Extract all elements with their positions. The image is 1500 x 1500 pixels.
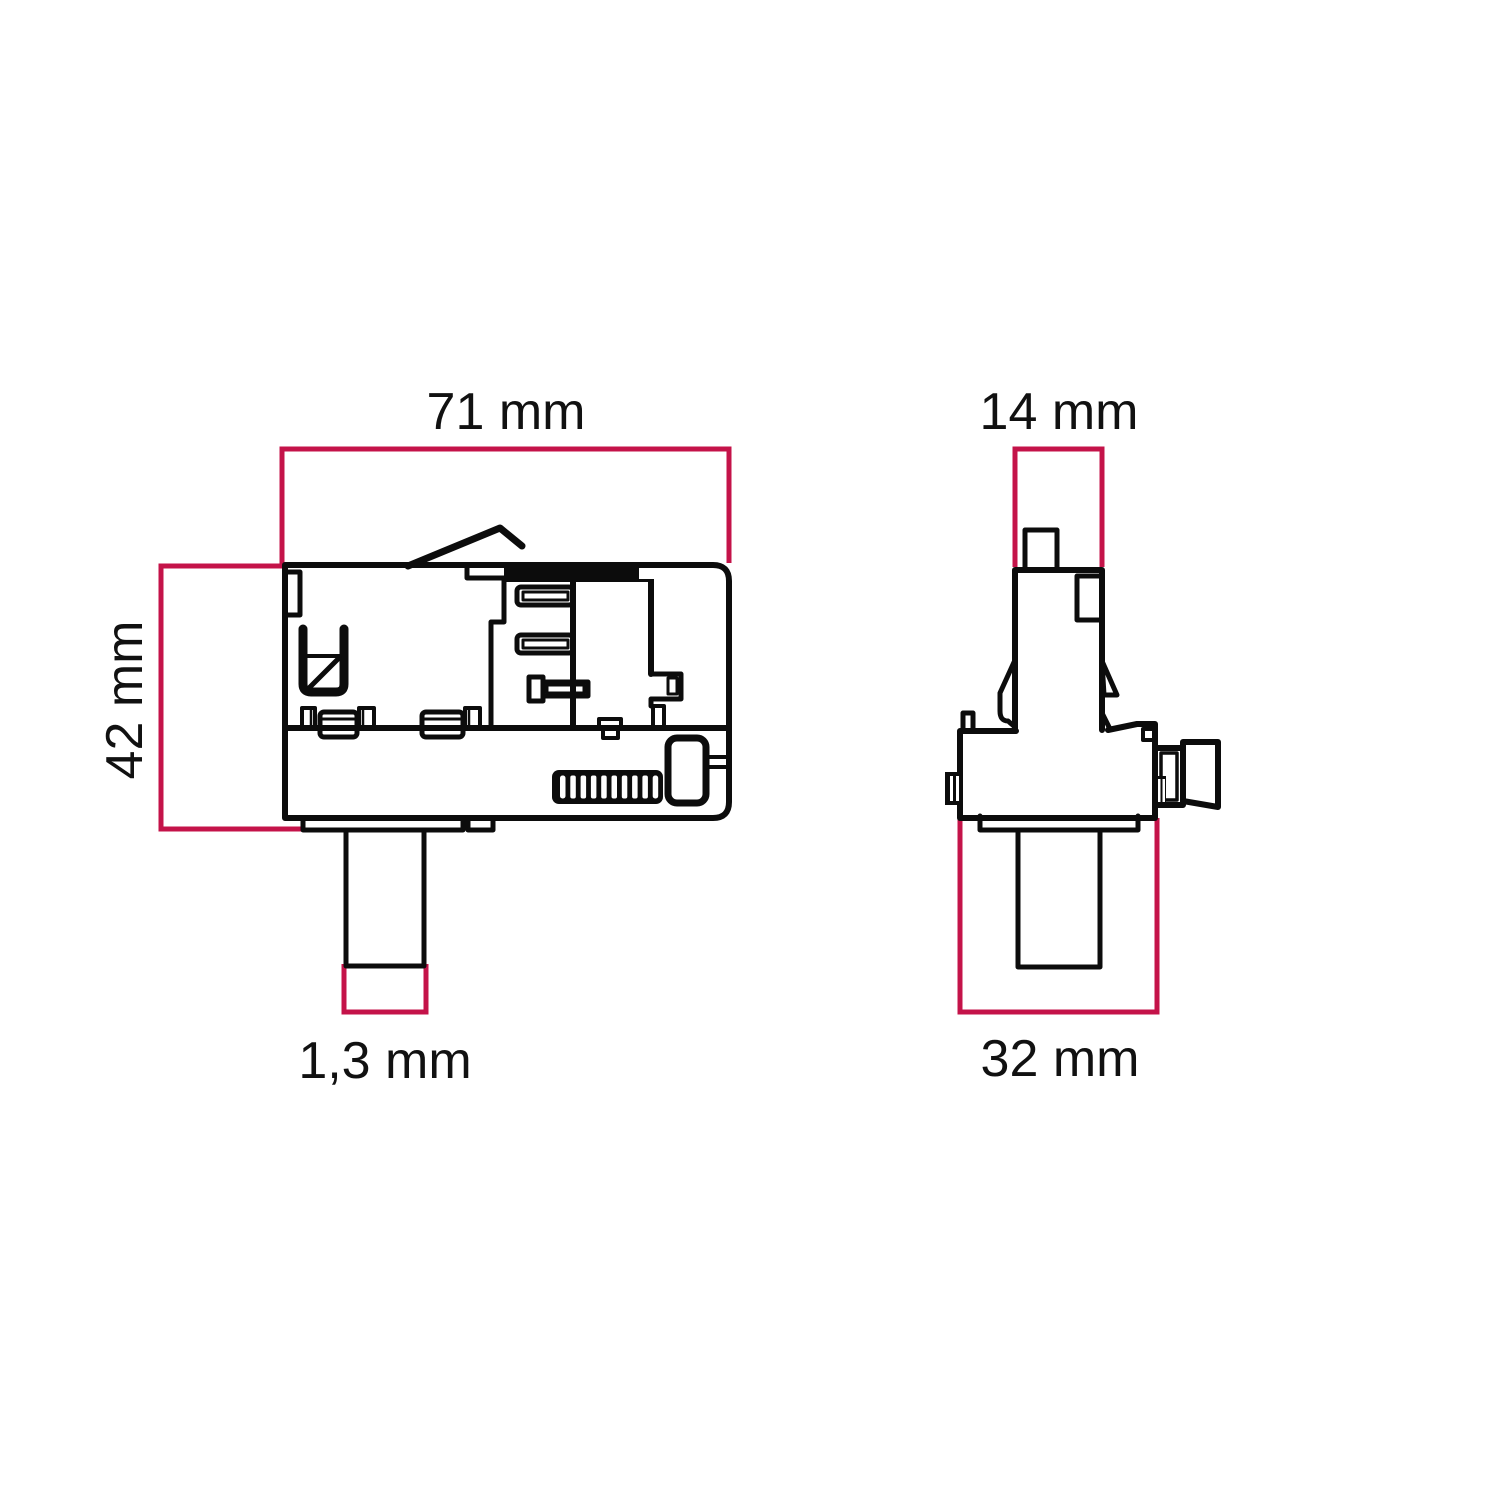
stem-outline bbox=[1015, 570, 1102, 730]
front-left-bump-slit-2 bbox=[956, 776, 959, 801]
contact-prong-right-inner bbox=[668, 678, 677, 694]
contact-prong-2 bbox=[517, 635, 573, 653]
front-view-stem bbox=[1000, 530, 1117, 730]
divider-tab-center-lower bbox=[603, 728, 618, 738]
dimension-line-pin-1-3mm bbox=[344, 964, 426, 1012]
top-band bbox=[504, 563, 654, 582]
side-view-width-label: 71 mm bbox=[427, 383, 586, 441]
front-left-bump bbox=[945, 772, 962, 805]
front-right-lip bbox=[1143, 729, 1155, 740]
stem-notch-window bbox=[1077, 576, 1102, 620]
separator-wall bbox=[467, 568, 504, 728]
diagram-canvas: 71 mm 42 mm 1,3 mm bbox=[0, 0, 1500, 1500]
top-band-window bbox=[639, 568, 657, 579]
contact-prong-2-inner bbox=[523, 640, 568, 648]
front-fixing-pin bbox=[1018, 830, 1100, 967]
dimension-line-width-71mm bbox=[282, 449, 729, 565]
contact-block-foot bbox=[653, 706, 664, 728]
side-view-lower-right bbox=[552, 738, 726, 804]
side-view-bottom bbox=[303, 818, 493, 966]
contact-prong-1-inner bbox=[523, 592, 568, 600]
side-view-pin-label: 1,3 mm bbox=[298, 1032, 471, 1090]
front-view-base-label: 32 mm bbox=[981, 1030, 1140, 1088]
corner-block bbox=[668, 738, 706, 803]
contact-prong-1 bbox=[517, 587, 573, 605]
side-view-contact-block bbox=[517, 582, 681, 738]
technical-drawing-svg: 71 mm 42 mm 1,3 mm bbox=[0, 0, 1500, 1500]
dimension-line-height-42mm bbox=[161, 566, 302, 829]
front-view-side-connector bbox=[1155, 742, 1218, 807]
front-left-bump-slit-1 bbox=[950, 776, 953, 801]
side-connector-cap bbox=[1183, 742, 1218, 807]
divider-tab-wide-2 bbox=[422, 712, 463, 737]
divider-tab-wide-1 bbox=[320, 712, 357, 737]
front-view-width-label: 14 mm bbox=[980, 383, 1139, 441]
stem-barb-right bbox=[1102, 661, 1117, 695]
contact-prong-3-inner bbox=[547, 685, 584, 693]
fixing-pin bbox=[346, 830, 424, 966]
front-view-outline bbox=[945, 713, 1155, 967]
u-clip-diagonal bbox=[309, 658, 339, 688]
dimension-line-base-32mm bbox=[960, 818, 1157, 1012]
twist-knob bbox=[1025, 530, 1057, 570]
front-view-drawing: 14 mm 32 mm bbox=[945, 383, 1218, 1088]
side-connector-hatch-slit-2 bbox=[1163, 779, 1166, 802]
front-body-outline bbox=[960, 724, 1155, 818]
side-view-drawing: 71 mm 42 mm 1,3 mm bbox=[96, 383, 729, 1090]
release-lever bbox=[408, 528, 522, 566]
side-connector-hatch-slit-1 bbox=[1158, 779, 1161, 802]
side-view-left-compartment bbox=[302, 629, 480, 737]
side-view-height-label: 42 mm bbox=[96, 621, 154, 780]
